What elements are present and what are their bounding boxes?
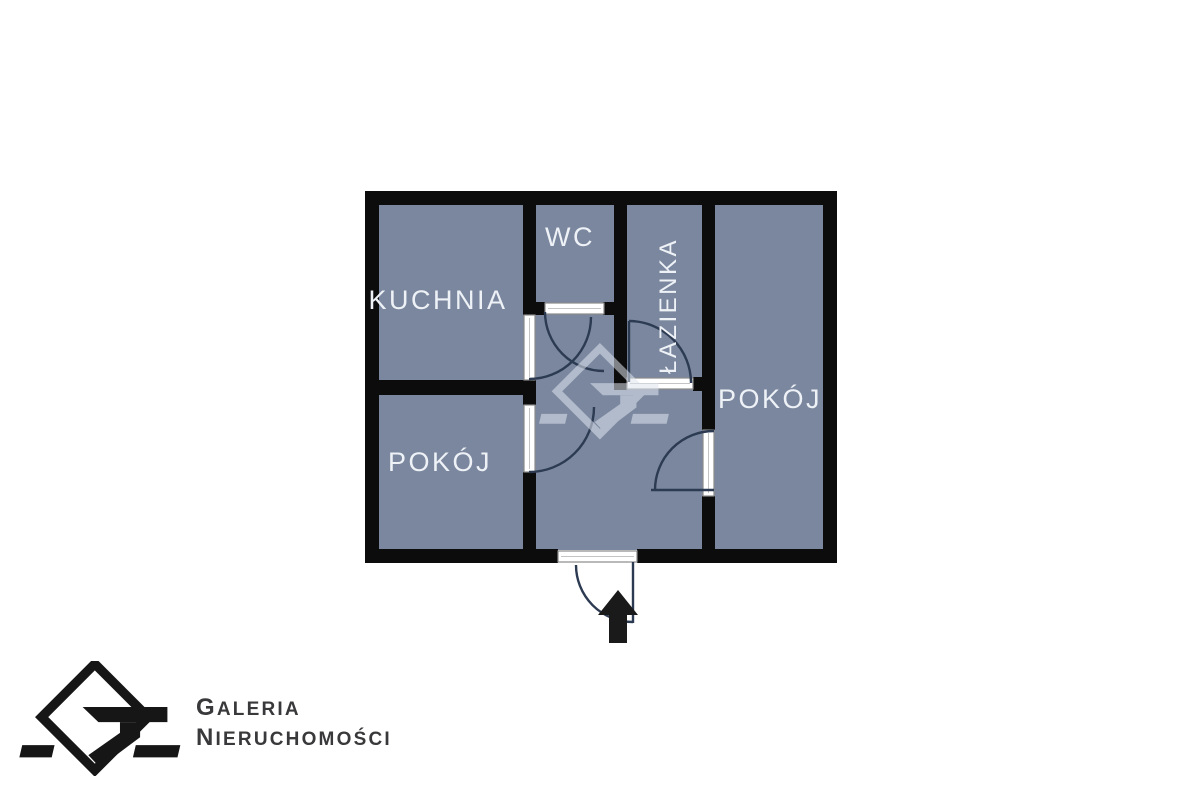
wall-segment	[823, 191, 837, 563]
wall-segment	[523, 205, 536, 315]
apartment-interior	[378, 204, 824, 550]
wall-segment	[693, 377, 702, 391]
wall-segment	[536, 302, 545, 315]
door-frame-entrance	[558, 551, 637, 562]
wall-segment	[603, 302, 614, 315]
brand-name-line2: NIERUCHOMOŚCI	[196, 724, 392, 754]
room-label-wc: WC	[545, 222, 595, 252]
wall-segment	[702, 496, 715, 549]
door-frame-kuchnia	[524, 315, 535, 380]
wall-segment	[637, 549, 837, 563]
brand-name: GALERIA NIERUCHOMOŚCI	[196, 694, 392, 754]
floor-plan-page: KUCHNIA WC ŁAZIENKA POKÓJ POKÓJ GALERIA …	[0, 0, 1200, 800]
room-label-pokoj-left: POKÓJ	[388, 446, 492, 477]
wall-segment	[702, 205, 715, 430]
door-frame-wc	[545, 303, 604, 314]
room-label-pokoj-right: POKÓJ	[718, 383, 822, 414]
wall-segment	[365, 191, 379, 563]
wall-segment	[365, 380, 536, 395]
door-frame-pokoj-right	[703, 430, 714, 496]
wall-segment	[523, 472, 536, 549]
wall-segment	[365, 191, 837, 205]
room-label-kuchnia: KUCHNIA	[368, 285, 507, 315]
wall-segment	[365, 549, 558, 563]
room-label-lazienka: ŁAZIENKA	[655, 238, 682, 374]
brand-logo-icon	[19, 661, 185, 776]
door-frame-pokoj-left	[524, 405, 535, 472]
brand-name-line1: GALERIA	[196, 694, 392, 724]
